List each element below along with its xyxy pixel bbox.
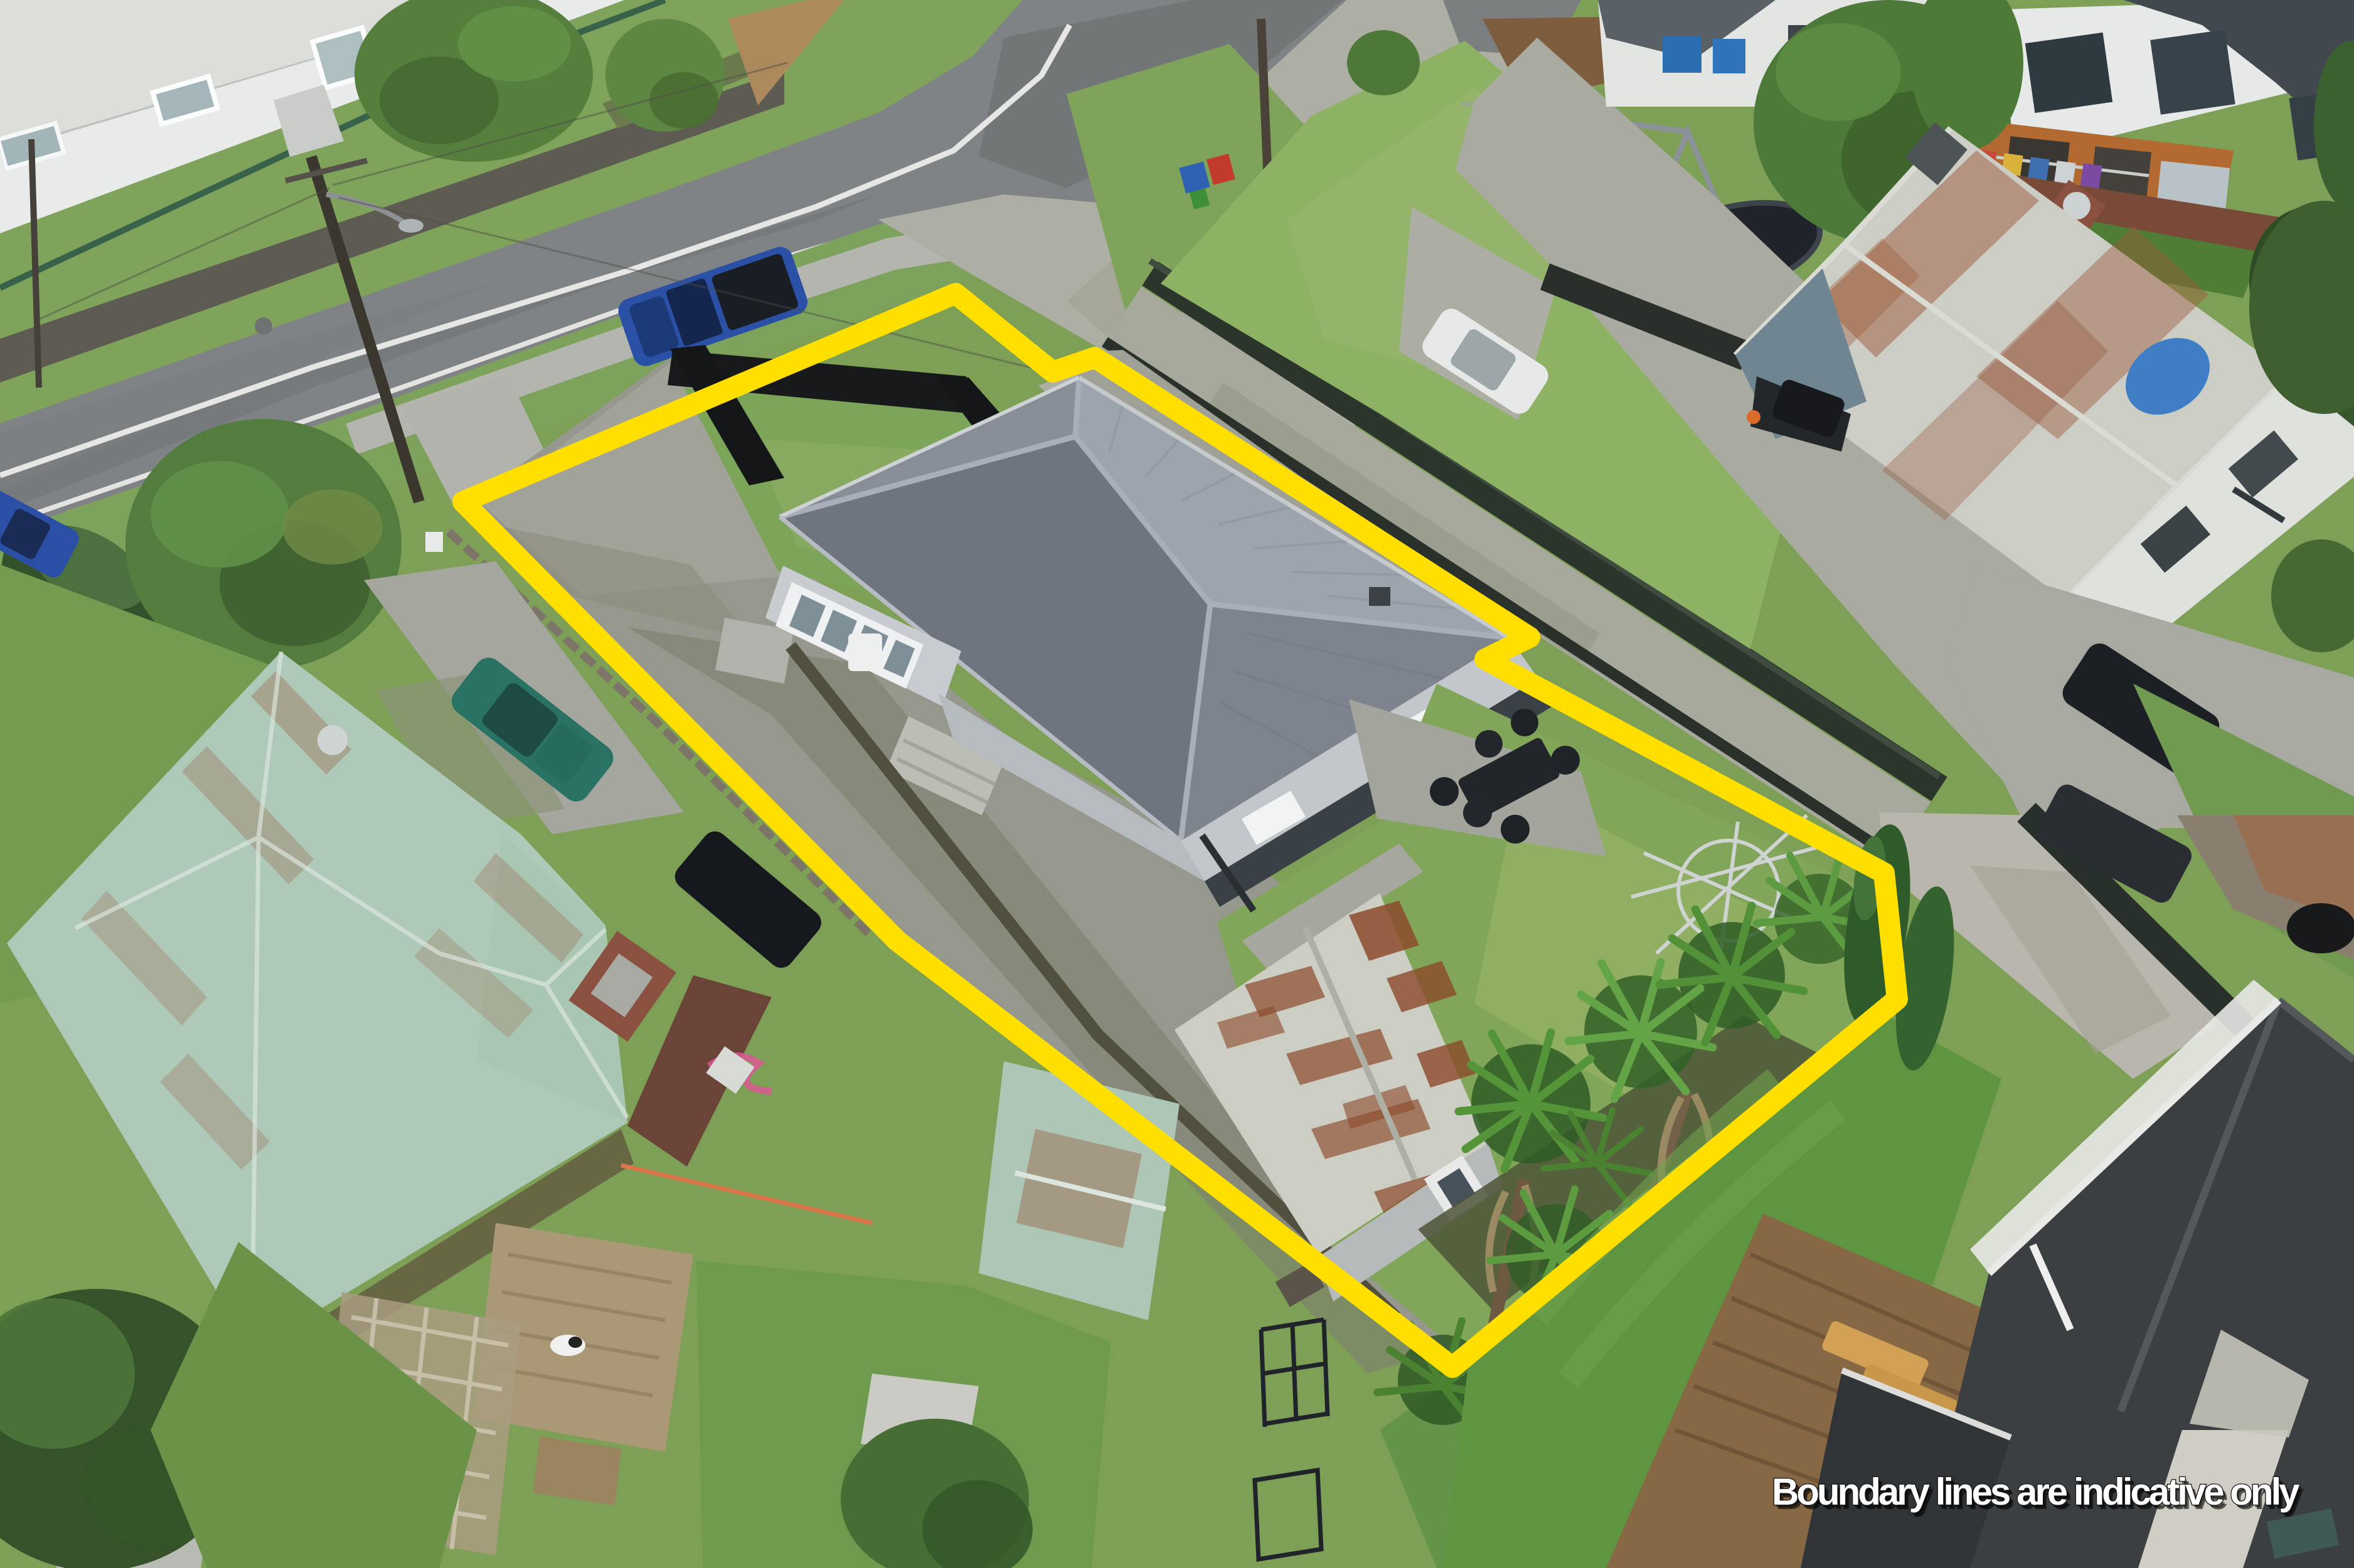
- svg-text:Boundary lines are indicative: Boundary lines are indicative only: [1772, 1471, 2300, 1513]
